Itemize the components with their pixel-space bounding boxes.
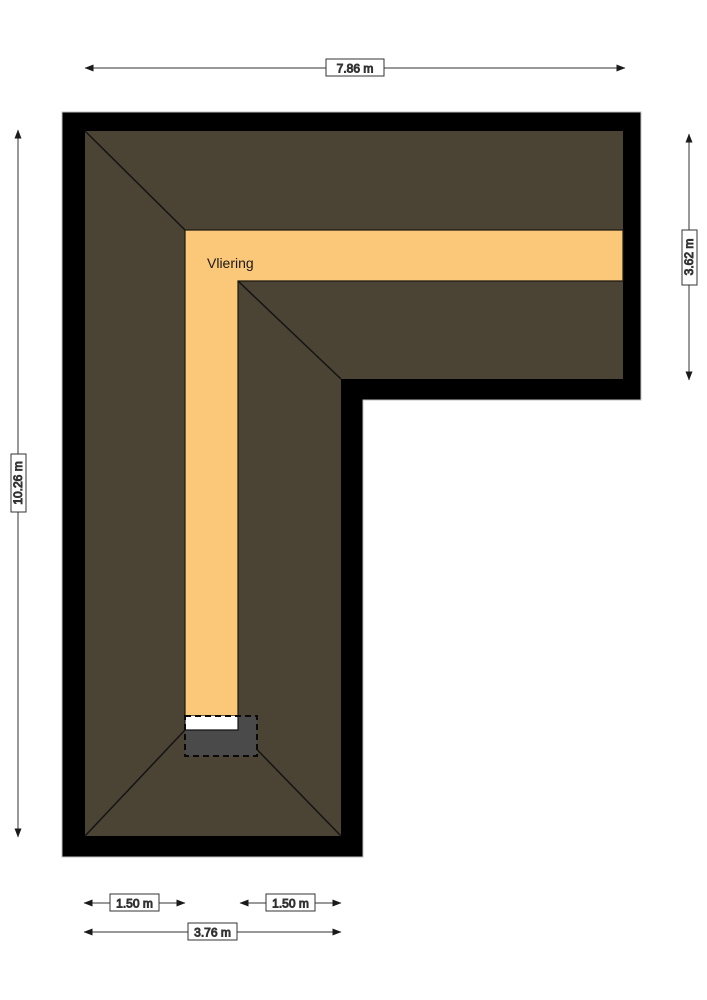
- dimension-right-label: 3.62 m: [682, 239, 696, 276]
- floor-plan-page: 7.86 m 10.26 m 3.62 m 1.50 m: [0, 0, 707, 1000]
- dimension-bottom-left-label: 1.50 m: [116, 897, 153, 911]
- stair-opening: [185, 716, 257, 756]
- dimension-right: 3.62 m: [682, 134, 697, 380]
- dimension-left-label: 10.26 m: [11, 461, 25, 504]
- dimension-bottom-right: 1.50 m: [240, 894, 341, 911]
- dimension-bottom-total: 3.76 m: [84, 923, 341, 940]
- dimension-left: 10.26 m: [11, 130, 26, 837]
- room-label: Vliering: [207, 255, 254, 271]
- stair-opening-strip: [185, 716, 238, 730]
- dimension-top: 7.86 m: [85, 59, 625, 76]
- floor-plan: 7.86 m 10.26 m 3.62 m 1.50 m: [0, 0, 707, 1000]
- dimension-bottom-total-label: 3.76 m: [194, 926, 231, 940]
- dimension-bottom-right-label: 1.50 m: [272, 897, 309, 911]
- dimension-top-label: 7.86 m: [337, 62, 374, 76]
- dimension-bottom-left: 1.50 m: [84, 894, 185, 911]
